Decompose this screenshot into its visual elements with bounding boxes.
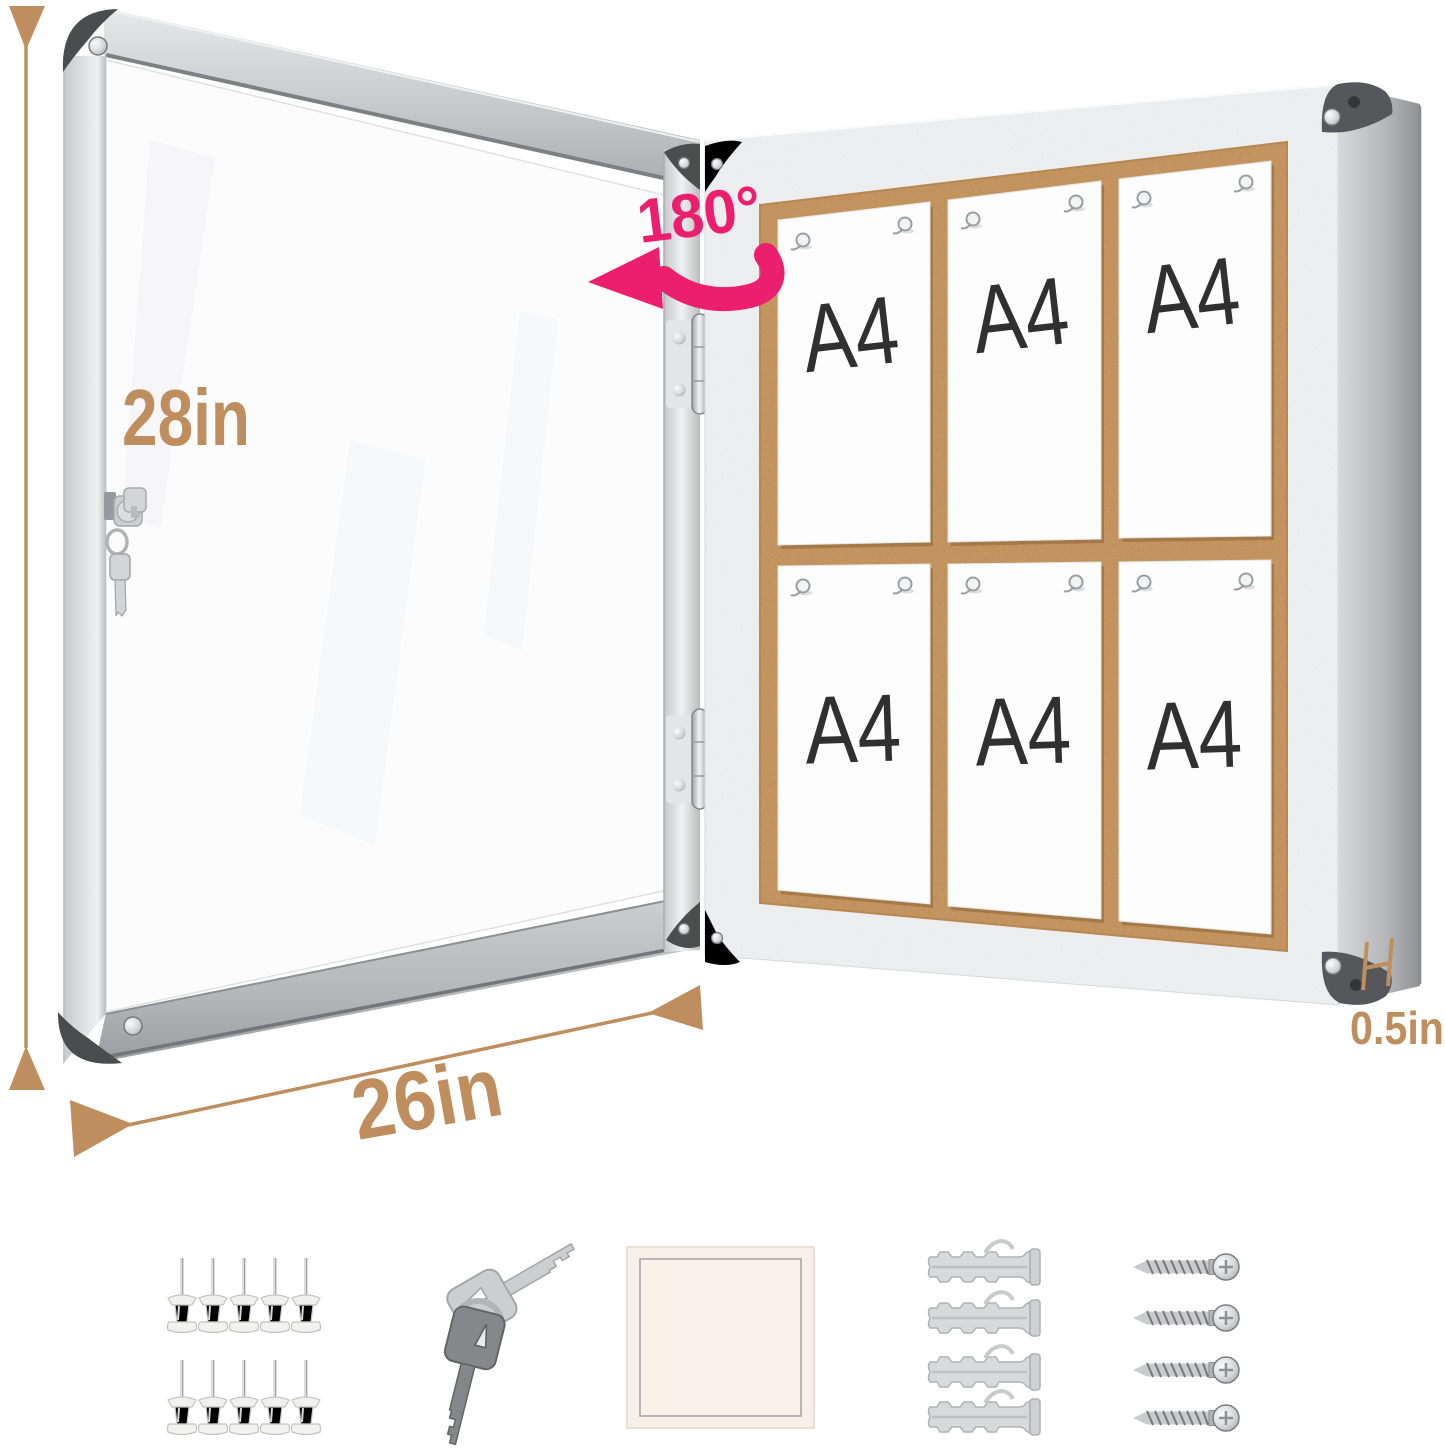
wall-anchors [929, 1241, 1041, 1435]
corner-screw [712, 159, 723, 170]
door-frame-left [63, 56, 106, 1064]
push-pin [229, 1360, 258, 1435]
paper-label: A4 [797, 276, 904, 393]
corner-screw [679, 924, 690, 935]
push-pin [198, 1258, 227, 1333]
key-set [423, 1227, 588, 1449]
door-edge-strip [664, 142, 700, 952]
screw [1133, 1254, 1239, 1280]
paper-a4 [1119, 161, 1271, 538]
push-pins [167, 1258, 320, 1435]
paper-label: A4 [973, 676, 1073, 786]
paper-label: A4 [1144, 680, 1244, 790]
wall-anchor [929, 1241, 1041, 1285]
push-pin [260, 1360, 289, 1435]
screw [1133, 1305, 1239, 1331]
paper-label: A4 [967, 257, 1074, 374]
arrowhead-down-icon [9, 1046, 45, 1090]
paper-label: A4 [1138, 237, 1245, 354]
case-side-depth [1338, 84, 1420, 1005]
wall-anchor [929, 1292, 1041, 1336]
arrowhead-left-icon [70, 1100, 133, 1157]
push-pin [198, 1360, 227, 1435]
push-pin [260, 1258, 289, 1333]
push-pin [167, 1360, 196, 1435]
wall-anchor [929, 1391, 1041, 1435]
corner-screw [712, 933, 723, 944]
push-pin [291, 1258, 320, 1333]
adhesive-pad [627, 1247, 814, 1428]
corner-screw [89, 37, 107, 55]
cap-hole [1348, 96, 1360, 108]
corner-screw [679, 158, 690, 169]
mounting-screws [1133, 1254, 1239, 1431]
arrowhead-up-icon [9, 6, 45, 50]
push-pin [167, 1258, 196, 1333]
push-pin [291, 1360, 320, 1435]
cap-hole [1350, 979, 1362, 991]
key-lower [423, 1304, 506, 1449]
wall-anchor [929, 1346, 1041, 1390]
push-pin [229, 1258, 258, 1333]
width-label: 26in [345, 1039, 509, 1158]
height-label: 28in [122, 373, 250, 462]
arrowhead-right-icon [648, 985, 703, 1030]
accessories [167, 1227, 1239, 1449]
product-figure: A4 A4 A4 A4 A4 A4 [0, 0, 1445, 1452]
corner-screw [124, 1017, 142, 1035]
door-panel [58, 8, 700, 1064]
screw [1133, 1405, 1239, 1431]
display-case: A4 A4 A4 A4 A4 A4 [705, 82, 1420, 1005]
bulletin-board-scene: A4 A4 A4 A4 A4 A4 [0, 0, 1445, 1452]
corner-screw [1325, 958, 1341, 974]
height-arrow [9, 6, 45, 1090]
corner-screw [1324, 109, 1340, 125]
depth-label: 0.5in [1350, 1002, 1444, 1054]
paper-label: A4 [803, 674, 903, 784]
screw [1133, 1357, 1239, 1383]
